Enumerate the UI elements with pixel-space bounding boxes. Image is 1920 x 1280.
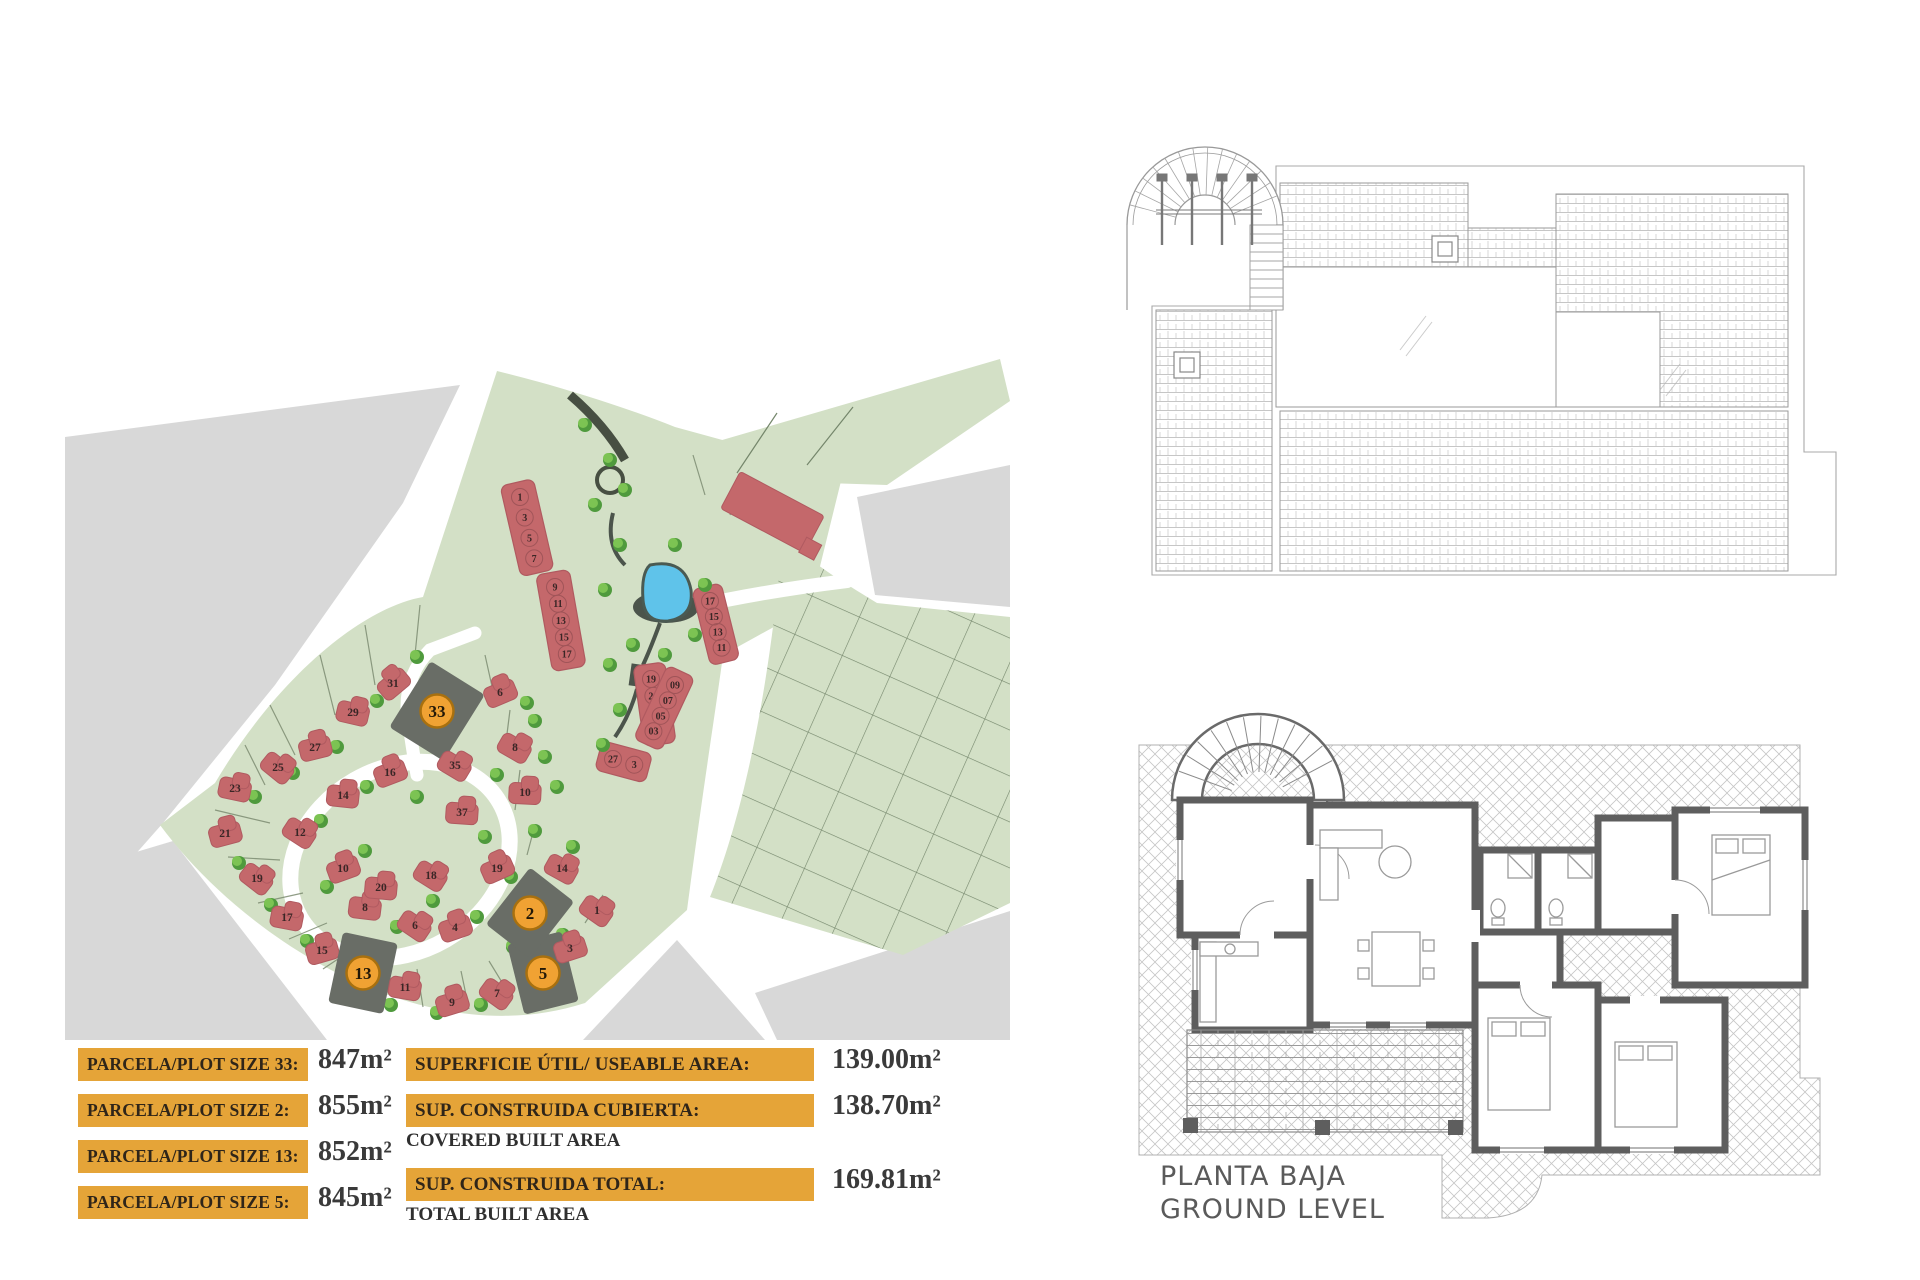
tree-icon <box>426 894 440 908</box>
plot-number: 6 <box>412 920 418 932</box>
plot-size-value: 852m² <box>318 1136 392 1168</box>
unit-number: 7 <box>532 554 537 565</box>
unit-number: 13 <box>713 628 723 639</box>
tree-icon <box>603 658 617 672</box>
tree-icon <box>578 418 592 432</box>
highlight-number: 5 <box>539 964 548 983</box>
tree-icon <box>698 578 712 592</box>
ground-plan-title-en: GROUND LEVEL <box>1160 1194 1385 1225</box>
plot-number: 35 <box>449 760 461 772</box>
plot-number: 7 <box>494 988 500 1000</box>
tree-icon <box>603 453 617 467</box>
tree-icon <box>370 694 384 708</box>
highlight-number: 13 <box>355 964 372 983</box>
plot-number: 11 <box>400 982 411 994</box>
ground-floor-plan: PLANTA BAJA GROUND LEVEL <box>1090 650 1900 1250</box>
plot-number: 19 <box>251 873 263 885</box>
tree-icon <box>618 483 632 497</box>
unit-number: 5 <box>527 533 532 544</box>
plot-number: 31 <box>387 678 399 690</box>
plot-number: 18 <box>425 870 437 882</box>
unit-number: 11 <box>553 599 562 610</box>
plot-size-label: PARCELA/PLOT SIZE 5: <box>78 1186 308 1219</box>
highlight-number: 33 <box>429 702 446 721</box>
plot-number: 20 <box>375 882 387 894</box>
built-area-caption: TOTAL BUILT AREA <box>406 1204 589 1226</box>
unit-number: 11 <box>717 643 726 654</box>
plot-size-label: PARCELA/PLOT SIZE 2: <box>78 1094 308 1127</box>
tree-icon <box>470 910 484 924</box>
unit-number: 19 <box>646 675 656 686</box>
tree-icon <box>410 790 424 804</box>
plot-number: 3 <box>567 943 573 955</box>
plot-number: 12 <box>294 827 306 839</box>
stair-tower-roof <box>1127 147 1283 310</box>
brochure-page: 1357911131517192123251715131109070503273… <box>0 0 1920 1280</box>
plot-number: 25 <box>272 762 284 774</box>
unit-number: 17 <box>705 597 715 608</box>
tree-icon <box>538 750 552 764</box>
unit-number: 07 <box>663 696 673 707</box>
plot-number: 37 <box>456 807 468 819</box>
unit-number: 3 <box>632 760 637 771</box>
unit-number: 9 <box>553 583 558 594</box>
plot-number: 1 <box>594 905 600 917</box>
unit-number: 09 <box>670 681 680 692</box>
plot-number: 10 <box>337 863 349 875</box>
tree-icon <box>598 583 612 597</box>
plot-number: 9 <box>449 997 455 1009</box>
tree-icon <box>478 830 492 844</box>
plot-number: 17 <box>281 912 293 924</box>
toilet-2 <box>1549 899 1563 917</box>
plot-size-value: 845m² <box>318 1182 392 1214</box>
plot-number: 16 <box>384 767 396 779</box>
tree-icon <box>613 538 627 552</box>
tree-icon <box>626 638 640 652</box>
plot-number: 23 <box>229 783 241 795</box>
tree-icon <box>613 703 627 717</box>
tree-icon <box>528 714 542 728</box>
terrace <box>1183 1030 1463 1135</box>
built-area-label: SUP. CONSTRUIDA TOTAL: <box>406 1168 814 1201</box>
plot-size-value: 855m² <box>318 1090 392 1122</box>
built-area-caption: COVERED BUILT AREA <box>406 1130 620 1152</box>
plot-number: 6 <box>497 687 503 699</box>
unit-number: 05 <box>656 711 666 722</box>
plot-number: 19 <box>491 863 503 875</box>
unit-number: 27 <box>608 755 618 766</box>
built-area-row: SUPERFICIE ÚTIL/ USEABLE AREA:139.00m² <box>406 1048 1026 1081</box>
plot-number: 4 <box>452 922 458 934</box>
built-area-value: 139.00m² <box>832 1044 941 1076</box>
plot-number: 15 <box>316 945 328 957</box>
plot-number: 14 <box>556 863 568 875</box>
toilet-1 <box>1491 899 1505 917</box>
tree-icon <box>520 696 534 710</box>
built-area-label: SUP. CONSTRUIDA CUBIERTA: <box>406 1094 814 1127</box>
built-area-row: SUP. CONSTRUIDA TOTAL:169.81m²TOTAL BUIL… <box>406 1168 1026 1201</box>
tree-icon <box>588 498 602 512</box>
unit-number: 1 <box>518 493 523 504</box>
built-area-label: SUPERFICIE ÚTIL/ USEABLE AREA: <box>406 1048 814 1081</box>
plot-size-label: PARCELA/PLOT SIZE 33: <box>78 1048 308 1081</box>
unit-number: 15 <box>559 633 569 644</box>
built-area-row: SUP. CONSTRUIDA CUBIERTA:138.70m²COVERED… <box>406 1094 1026 1127</box>
coffee-table <box>1379 846 1411 878</box>
plot-number: 29 <box>347 707 359 719</box>
built-area-value: 138.70m² <box>832 1090 941 1122</box>
plot-number: 8 <box>362 902 368 914</box>
plot-size-label: PARCELA/PLOT SIZE 13: <box>78 1140 308 1173</box>
courtyard <box>1276 267 1556 407</box>
plot-number: 14 <box>337 790 349 802</box>
plot-number: 21 <box>219 828 231 840</box>
ground-plan-title-es: PLANTA BAJA <box>1160 1161 1346 1192</box>
tree-icon <box>360 780 374 794</box>
room-entry <box>1180 800 1310 935</box>
plot-number: 27 <box>309 742 321 754</box>
tree-icon <box>566 840 580 854</box>
tree-icon <box>668 538 682 552</box>
unit-number: 03 <box>648 727 658 738</box>
tree-icon <box>410 650 424 664</box>
tree-icon <box>688 628 702 642</box>
tree-icon <box>528 824 542 838</box>
room-dressing <box>1598 818 1675 932</box>
tree-icon <box>596 738 610 752</box>
plot-number: 10 <box>519 787 531 799</box>
pond <box>643 564 692 621</box>
sofa <box>1320 830 1382 848</box>
built-area-value: 169.81m² <box>832 1164 941 1196</box>
unit-number: 15 <box>709 612 719 623</box>
site-plan-map: 1357911131517192123251715131109070503273… <box>65 355 1010 1040</box>
tree-icon <box>384 998 398 1012</box>
top-green-strip <box>705 359 1010 485</box>
unit-number: 17 <box>562 649 572 660</box>
tree-icon <box>490 768 504 782</box>
tree-icon <box>658 648 672 662</box>
tree-icon <box>358 844 372 858</box>
plot-number: 8 <box>512 742 518 754</box>
highlight-number: 2 <box>526 904 535 923</box>
plot-size-value: 847m² <box>318 1044 392 1076</box>
unit-number: 3 <box>522 513 527 524</box>
dining-table <box>1372 932 1420 986</box>
unit-number: 13 <box>556 616 566 627</box>
roof-plan <box>1100 60 1900 620</box>
tree-icon <box>232 856 246 870</box>
tree-icon <box>550 780 564 794</box>
